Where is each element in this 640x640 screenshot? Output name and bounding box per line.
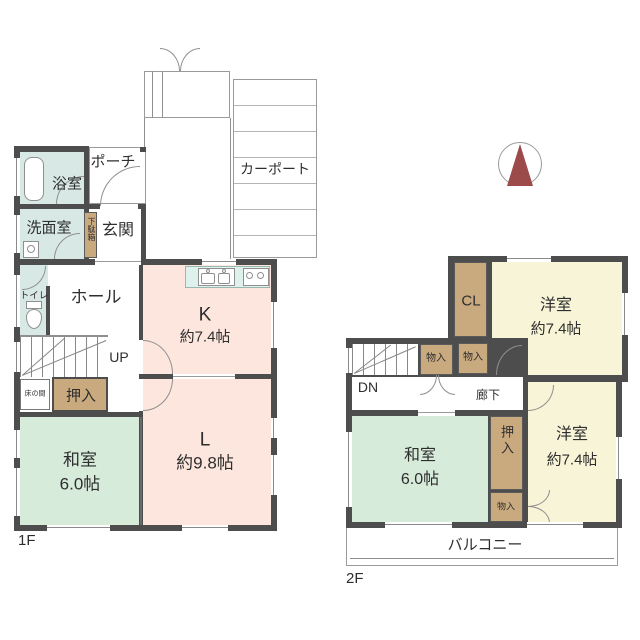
storage-3-label: 物入 bbox=[497, 503, 515, 512]
window bbox=[507, 256, 551, 262]
storage-2-label: 物入 bbox=[463, 353, 483, 363]
gate-door-arc-right bbox=[180, 48, 200, 71]
hall-label: ホール bbox=[71, 289, 122, 306]
washitsu-2f-sliding-door bbox=[418, 410, 455, 416]
window bbox=[271, 302, 277, 348]
window bbox=[14, 342, 20, 372]
window bbox=[14, 158, 20, 196]
room-washitsu-2f bbox=[352, 416, 488, 522]
washitsu-2f-size-label: 6.0帖 bbox=[401, 472, 439, 488]
window bbox=[14, 468, 20, 516]
window bbox=[202, 259, 236, 265]
window bbox=[182, 525, 228, 531]
window bbox=[271, 418, 277, 438]
youshitsu-1-label: 洋室 bbox=[540, 298, 572, 314]
youshitsu-2-size-label: 約7.4帖 bbox=[547, 453, 598, 468]
kitchen-sink-bowl bbox=[201, 273, 215, 284]
cl-label: CL bbox=[461, 294, 480, 309]
window bbox=[47, 525, 110, 531]
kitchen-label: K bbox=[199, 306, 212, 325]
kitchen-faucet bbox=[222, 269, 226, 273]
window bbox=[346, 348, 352, 373]
kitchen-faucet bbox=[206, 269, 210, 273]
toilet-label: トイレ bbox=[20, 291, 49, 301]
room-washitsu-1f bbox=[20, 417, 139, 525]
bathtub bbox=[24, 157, 44, 201]
window bbox=[14, 215, 20, 253]
window bbox=[14, 430, 20, 458]
kitchen-size-label: 約7.4帖 bbox=[180, 330, 231, 345]
bath-label: 浴室 bbox=[52, 177, 82, 192]
toilet-tank bbox=[26, 301, 42, 309]
entrance-label: 玄関 bbox=[102, 223, 134, 239]
living-label: L bbox=[200, 431, 211, 450]
gate-door-arc-left bbox=[160, 48, 180, 71]
kl-sliding-door bbox=[173, 374, 235, 379]
floor-plan-canvas: カーポート 浴室 洗面室 下駄箱 ポーチ 玄関 bbox=[0, 0, 640, 640]
oshiire-1f-label: 押入 bbox=[66, 389, 96, 404]
storage-1-label: 物入 bbox=[426, 354, 446, 364]
stairs-up-label: UP bbox=[109, 350, 128, 364]
youshitsu-1-size-label: 約7.4帖 bbox=[531, 322, 582, 337]
kitchen-sink-bowl bbox=[218, 273, 230, 284]
floor2-label: 2F bbox=[346, 570, 364, 587]
washitsu-living-fusuma bbox=[140, 417, 142, 525]
corridor-label: 廊下 bbox=[476, 389, 500, 401]
window bbox=[622, 293, 628, 335]
window bbox=[346, 432, 352, 507]
window bbox=[616, 437, 622, 479]
youshitsu-2-right-wall-upper bbox=[616, 382, 622, 410]
approach-left-line bbox=[144, 118, 145, 148]
washitsu-1f-label: 和室 bbox=[63, 452, 97, 469]
floor1-label: 1F bbox=[18, 532, 36, 549]
stove-burner bbox=[246, 272, 253, 279]
entrance-hall-step bbox=[95, 259, 141, 265]
stairs-down-label: DN bbox=[358, 380, 378, 394]
tokonoma-label: 床の間 bbox=[25, 391, 46, 398]
youshitsu-2-label: 洋室 bbox=[556, 427, 588, 443]
gate-structure bbox=[144, 71, 230, 118]
kitchen-left-wall bbox=[139, 265, 143, 340]
porch-corner-stub bbox=[140, 147, 146, 152]
approach-right-line bbox=[230, 118, 231, 259]
stove-burner bbox=[257, 272, 264, 279]
compass-needle-icon bbox=[507, 144, 533, 186]
washitsu-1f-size-label: 6.0帖 bbox=[60, 476, 101, 493]
window bbox=[527, 522, 583, 528]
washitsu-2f-label: 和室 bbox=[404, 448, 436, 464]
window bbox=[385, 522, 452, 528]
living-size-label: 約9.8帖 bbox=[176, 455, 234, 472]
gate-post-line bbox=[162, 71, 163, 118]
window bbox=[271, 455, 277, 495]
oshiire-2f-label: 押入 bbox=[500, 425, 513, 457]
carport-label: カーポート bbox=[240, 162, 310, 176]
washbasin-bowl bbox=[27, 245, 35, 253]
washroom-label: 洗面室 bbox=[26, 221, 71, 236]
balcony-label: バルコニー bbox=[448, 538, 523, 553]
porch-label: ポーチ bbox=[90, 155, 135, 170]
gate-post-line bbox=[152, 71, 153, 118]
balcony-inner-rail bbox=[350, 558, 614, 559]
shoe-cabinet-label: 下駄箱 bbox=[87, 217, 95, 241]
